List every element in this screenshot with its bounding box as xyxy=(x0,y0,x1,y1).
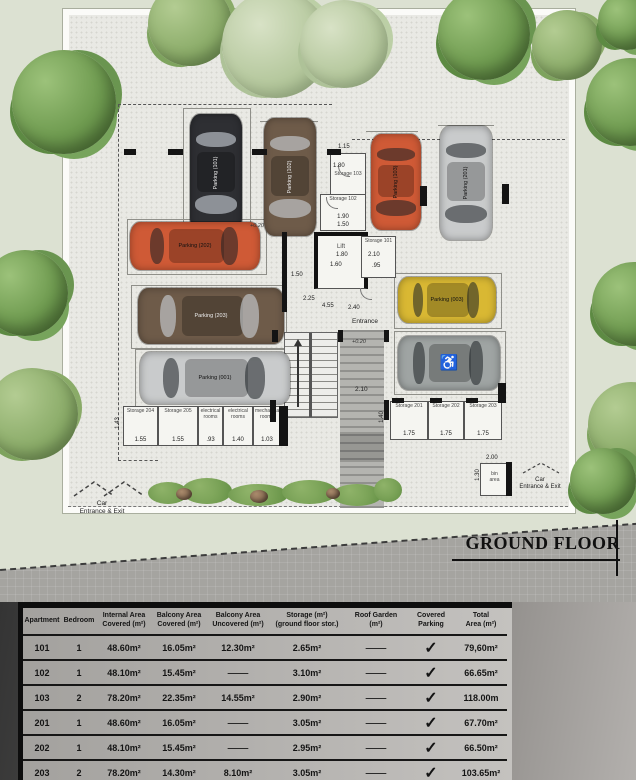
dimension: 1.50 xyxy=(321,222,365,228)
dash-cell: — xyxy=(167,718,310,728)
dash-cell: — xyxy=(305,768,448,778)
stall-line xyxy=(366,131,418,132)
wall xyxy=(392,398,404,403)
table-cell: 103.65m² xyxy=(455,768,507,778)
wall xyxy=(384,330,389,342)
car-parking-102: Parking (102) xyxy=(264,118,316,236)
car-parking-203: Parking (203) xyxy=(138,288,284,344)
column-header: Apartment xyxy=(23,617,61,626)
table-cell: 14.30m² xyxy=(151,768,207,778)
room-label: Storage 203 xyxy=(466,404,500,410)
tree-icon xyxy=(570,448,636,514)
car-parking-103: Parking (103) xyxy=(371,134,421,230)
dash-cell: — xyxy=(167,743,310,753)
table-cell: 78.20m² xyxy=(97,768,151,778)
table-cell: 78.20m² xyxy=(97,693,151,703)
table-row: 101148.60m²16.05m²12.30m²2.65m²—✓79,60m² xyxy=(23,636,507,661)
stair-arrow-stem xyxy=(297,345,299,407)
column-header: Bedroom xyxy=(61,617,97,626)
tree-icon xyxy=(0,250,68,336)
table-cell: 1 xyxy=(61,668,97,678)
column-header: Balcony Area Covered (m²) xyxy=(151,612,207,630)
car-parking-201: Parking (201) xyxy=(440,126,492,240)
table-cell: 102 xyxy=(23,668,61,678)
setback-line xyxy=(118,104,119,460)
column-header: Roof Garden (m²) xyxy=(345,612,407,630)
tree-icon xyxy=(598,0,636,50)
dimension: 1.43 xyxy=(115,417,121,429)
tree-icon xyxy=(586,58,636,146)
room-label: electrical rooms xyxy=(200,409,221,420)
dimension: 1.03 xyxy=(254,437,280,443)
level-marker: +0.20 xyxy=(352,339,366,345)
parking-label: Parking (102) xyxy=(287,151,293,203)
room-label: electrical rooms xyxy=(225,409,251,420)
car-entrance-arrow-icon xyxy=(70,476,150,500)
dimension: 1.75 xyxy=(429,431,463,437)
dash-cell: — xyxy=(305,643,448,653)
table-cell: 48.60m² xyxy=(97,718,151,728)
table-cell: 1 xyxy=(61,643,97,653)
car-parking-001: Parking (001) xyxy=(140,352,290,404)
table-cell: 1 xyxy=(61,743,97,753)
table-cell: 103 xyxy=(23,693,61,703)
table-cell: 201 xyxy=(23,718,61,728)
dimension: 1.80 xyxy=(336,252,348,258)
car-entrance-label: Car Entrance & Exit xyxy=(62,500,142,516)
staircase xyxy=(284,332,338,418)
room-storage-202: Storage 202 1.75 xyxy=(428,401,464,440)
column-header: Internal Area Covered (m²) xyxy=(97,612,151,630)
table-row: 103278.20m²22.35m²14.55m²2.90m²—✓118.00m xyxy=(23,686,507,711)
room-storage-203: Storage 203 1.75 xyxy=(464,401,502,440)
parking-label: Parking (103) xyxy=(393,157,399,207)
column-header: Balcony Area Uncovered (m²) xyxy=(207,612,269,630)
table-cell: 101 xyxy=(23,643,61,653)
column-header: Total Area (m²) xyxy=(455,612,507,630)
column-header: Storage (m²) (ground floor stor.) xyxy=(269,612,345,630)
dimension: 1.80 xyxy=(333,163,345,169)
table-cell: 2 xyxy=(61,768,97,778)
dimension: 1.90 xyxy=(321,214,365,220)
parking-label: Parking (003) xyxy=(398,297,496,303)
table-row: 102148.10m²15.45m²—3.10m²—✓66.65m² xyxy=(23,661,507,686)
car-parking-202: Parking (202) xyxy=(130,222,260,270)
dimension: 1.60 xyxy=(330,262,342,268)
table-cell: 66.50m² xyxy=(455,743,507,753)
rock-icon xyxy=(250,490,268,503)
rock-icon xyxy=(176,488,192,500)
title-divider-line xyxy=(616,520,618,576)
table-cell: 203 xyxy=(23,768,61,778)
room-label: bin area xyxy=(482,472,507,483)
setback-line xyxy=(118,460,158,461)
room-label: Storage 202 xyxy=(430,404,462,410)
wall xyxy=(282,232,287,312)
room-electrical: electrical rooms .93 xyxy=(198,406,223,446)
room-lift: Lift xyxy=(314,232,368,289)
dimension: 1.75 xyxy=(465,431,501,437)
wall xyxy=(502,184,509,204)
car-parking-003: Parking (003) xyxy=(398,277,496,323)
table-cell: 66.65m² xyxy=(455,668,507,678)
bush-icon xyxy=(374,478,402,502)
ground-floor-drawing: Parking (101) Parking (102) Parking (103… xyxy=(0,0,636,780)
wall xyxy=(279,406,288,446)
room-mechanical: mechanical rooms 1.03 xyxy=(253,406,281,446)
parking-label: Parking (202) xyxy=(130,243,260,249)
wall xyxy=(270,400,276,422)
dash-cell: — xyxy=(305,743,448,753)
table-panel: Apartment Bedroom Internal Area Covered … xyxy=(0,602,636,780)
dimension: 2.40 xyxy=(348,305,360,311)
table-cell: 48.10m² xyxy=(97,668,151,678)
dimension: 1.75 xyxy=(391,431,427,437)
wall xyxy=(466,398,478,403)
tree-icon xyxy=(532,10,602,80)
dash-cell: — xyxy=(167,668,310,678)
tree-icon xyxy=(300,0,388,88)
car-entrance-arrow-icon xyxy=(520,460,562,476)
room-label: Storage 201 xyxy=(392,404,426,410)
dimension: 1.55 xyxy=(124,437,157,443)
table-cell: 1 xyxy=(61,718,97,728)
table-cell: 48.60m² xyxy=(97,643,151,653)
table-cell: 14.55m² xyxy=(207,693,269,703)
dimension: 1.40 xyxy=(224,437,252,443)
table-cell: 202 xyxy=(23,743,61,753)
tree-icon xyxy=(12,50,116,154)
apartment-table: Apartment Bedroom Internal Area Covered … xyxy=(18,602,512,780)
room-bin-area: bin area xyxy=(480,463,509,496)
wall xyxy=(252,149,267,155)
dash-cell: — xyxy=(305,718,448,728)
parking-label: Parking (001) xyxy=(140,375,290,381)
table-cell: 118.00m xyxy=(455,693,507,703)
page-title: GROUND FLOOR xyxy=(440,533,620,554)
dimension: 1.15 xyxy=(338,144,350,150)
rock-icon xyxy=(326,488,340,499)
dimension: 1.55 xyxy=(159,437,197,443)
dimension: 4.55 xyxy=(322,303,334,309)
dash-cell: — xyxy=(305,668,448,678)
room-storage-201: Storage 201 1.75 xyxy=(390,401,428,440)
wall xyxy=(168,149,183,155)
dimension: 2.10 xyxy=(368,252,380,258)
room-storage-205: Storage 205 1.55 xyxy=(158,406,198,446)
table-cell: 48.10m² xyxy=(97,743,151,753)
dimension: 1.40 xyxy=(379,411,385,423)
site-background: Parking (101) Parking (102) Parking (103… xyxy=(0,0,636,612)
room-label: Storage 204 xyxy=(125,409,156,415)
wall xyxy=(338,330,343,342)
dimension: .95 xyxy=(372,263,380,269)
room-label: Storage 101 xyxy=(363,239,394,245)
entrance-label: Entrance xyxy=(352,318,378,325)
stair-rail xyxy=(309,333,312,417)
dimension: 2.25 xyxy=(303,296,315,302)
wall xyxy=(124,149,136,155)
dimension: 1.50 xyxy=(291,272,303,278)
room-label: Lift xyxy=(319,244,363,251)
wheelchair-icon: ♿ xyxy=(440,354,459,372)
car-entrance-label: Car Entrance & Exit xyxy=(506,477,574,491)
table-cell: 22.35m² xyxy=(151,693,207,703)
parking-label: Parking (101) xyxy=(213,147,219,199)
setback-line xyxy=(118,104,332,105)
wall xyxy=(420,186,427,206)
table-row: 201148.60m²16.05m²—3.05m²—✓67.70m² xyxy=(23,711,507,736)
planting-strip xyxy=(148,476,402,508)
table-header-row: Apartment Bedroom Internal Area Covered … xyxy=(23,608,507,636)
wall xyxy=(272,330,278,342)
dimension: 2.00 xyxy=(486,455,498,461)
car-parking-disabled: ♿ xyxy=(398,336,500,390)
room-storage-204: Storage 204 1.55 xyxy=(123,406,158,446)
room-label: Storage 205 xyxy=(160,409,196,415)
table-cell: 67.70m² xyxy=(455,718,507,728)
wall xyxy=(498,383,506,403)
wall xyxy=(430,398,442,403)
walkway-steps xyxy=(340,432,384,462)
column-header: Covered Parking xyxy=(407,612,455,630)
tree-icon xyxy=(592,262,636,346)
table-row: 203278.20m²14.30m²8.10m²3.05m²—✓103.65m² xyxy=(23,761,507,780)
room-electrical: electrical rooms 1.40 xyxy=(223,406,253,446)
table-row: 202148.10m²15.45m²—2.95m²—✓66.50m² xyxy=(23,736,507,761)
parking-label: Parking (203) xyxy=(138,313,284,319)
dimension: 1.30 xyxy=(475,469,481,481)
dimension: .93 xyxy=(199,437,222,443)
level-marker: +0.20 xyxy=(250,223,264,229)
table-cell: 12.30m² xyxy=(207,643,269,653)
dimension: 2.10 xyxy=(355,386,368,393)
table-cell: 79,60m² xyxy=(455,643,507,653)
dash-cell: — xyxy=(305,693,448,703)
table-cell: 2 xyxy=(61,693,97,703)
table-cell: 8.10m² xyxy=(207,768,269,778)
parking-label: Parking (201) xyxy=(463,157,469,209)
table-rows: 101148.60m²16.05m²12.30m²2.65m²—✓79,60m²… xyxy=(23,636,507,780)
table-cell: 16.05m² xyxy=(151,643,207,653)
car-parking-101: Parking (101) xyxy=(190,114,242,232)
title-underline xyxy=(452,559,620,561)
